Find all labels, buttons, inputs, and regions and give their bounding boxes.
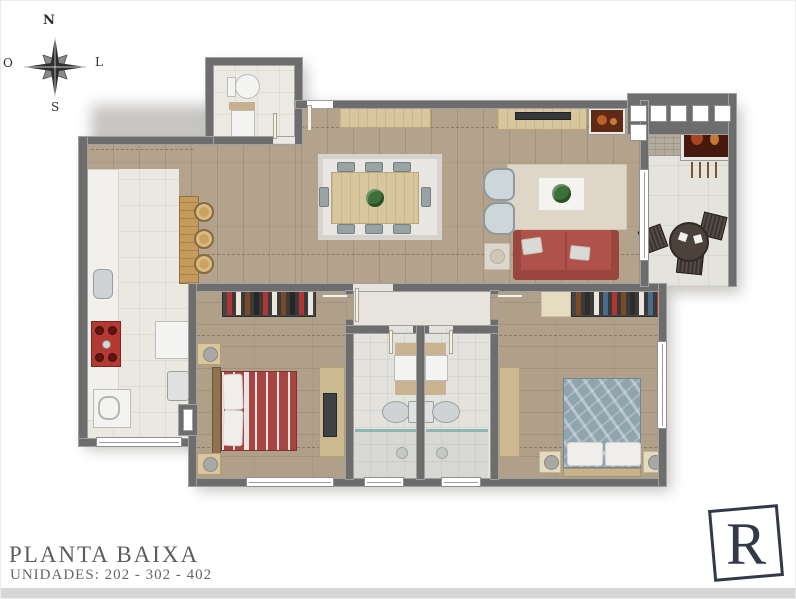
lavabo-walls: [206, 58, 302, 144]
bedroom2-door-leaf: [497, 294, 523, 298]
bath1-door-leaf: [389, 330, 393, 354]
fireplace: [589, 108, 625, 134]
bath1-drain: [396, 447, 408, 459]
kitchen-cooktop: [91, 321, 121, 367]
bath2-shower-zone: [424, 431, 488, 479]
coffee-table-plant: [552, 184, 571, 203]
sideboard: [339, 108, 431, 128]
refrigerator: [155, 321, 189, 359]
plan-subtitle: UNIDADES: 202 - 302 - 402: [10, 567, 212, 584]
footer-bar: [1, 588, 796, 599]
logo-frame-icon: R: [708, 504, 784, 582]
balcony-window: [631, 125, 646, 140]
compass-rose-icon: N O L S: [1, 7, 113, 119]
bedroom2-window: [657, 341, 667, 429]
laundry-tank: [167, 371, 189, 401]
bar-stool: [194, 254, 214, 274]
fire-glow: [597, 115, 607, 125]
bath1-vanity: [394, 355, 417, 381]
balcony-window: [715, 106, 730, 121]
sofa-pillow: [569, 245, 590, 261]
grill-skewer: [691, 162, 693, 178]
logo-mark: R: [705, 501, 789, 587]
bed-pillow: [222, 410, 243, 447]
dining-chair: [393, 224, 411, 234]
fire-glow: [710, 133, 719, 145]
balcony-glass-door: [639, 169, 649, 261]
burner: [108, 353, 117, 362]
logo-letter: R: [714, 510, 778, 579]
bath2-shower-glass: [426, 429, 488, 432]
wall-left: [79, 137, 87, 446]
lavabo-door-leaf: [273, 113, 277, 139]
compass-east-label: L: [95, 55, 103, 69]
bedroom1-door-leaf: [322, 294, 348, 298]
bedroom2-closet: [571, 287, 661, 317]
hanging-clothes: [227, 291, 313, 315]
hanging-clothes: [576, 290, 658, 315]
grill-skewer: [707, 162, 709, 178]
ceiling-line: [499, 335, 657, 336]
balcony-window: [693, 106, 708, 121]
bedroom1-closet: [222, 288, 316, 317]
bath2-toilet-bowl: [432, 401, 460, 423]
dining-chair: [319, 187, 329, 207]
balcony-table: [669, 222, 709, 262]
dining-chair: [365, 224, 383, 234]
napkin: [678, 232, 688, 242]
napkin: [693, 234, 703, 244]
plan-title: PLANTA BAIXA: [9, 542, 199, 568]
balcony-window: [651, 106, 666, 121]
fire-glow: [610, 118, 617, 125]
bedroom1-tv: [323, 393, 337, 437]
hall-door-leaf: [355, 288, 359, 322]
bedroom2-bed-bench: [563, 468, 641, 477]
wall-top-main: [296, 101, 646, 108]
balcony-window: [631, 106, 646, 121]
bedroom1-headboard: [212, 367, 221, 455]
wall-right-upper: [729, 94, 736, 286]
dining-chair: [337, 162, 355, 172]
bed-pillow: [222, 374, 243, 411]
tv-flatscreen: [515, 112, 571, 120]
bedroom1-window: [246, 477, 334, 487]
bar-stool: [194, 229, 214, 249]
ceiling-line: [197, 335, 345, 336]
bedside-lamp: [544, 455, 559, 470]
wall-kitchen-right: [189, 284, 196, 486]
dining-chair: [365, 162, 383, 172]
bedside-lamp: [203, 347, 218, 362]
bath2-door-leaf: [449, 330, 453, 354]
dining-chair: [421, 187, 431, 207]
stone-wall-panel: [646, 134, 680, 156]
bath1-window: [364, 477, 404, 487]
armchair: [483, 168, 515, 201]
dining-chair: [337, 224, 355, 234]
side-table: [484, 243, 510, 270]
burner: [108, 326, 117, 335]
bed-pillow: [567, 442, 603, 466]
bath2-drain: [436, 447, 448, 459]
burner-center: [102, 340, 111, 349]
burner: [95, 326, 104, 335]
armchair: [483, 202, 515, 235]
washing-machine: [93, 389, 131, 428]
sofa-pillow: [521, 237, 543, 256]
washer-drum: [98, 396, 120, 420]
bar-stool: [194, 202, 214, 222]
dining-chair: [393, 162, 411, 172]
utility-shaft: [179, 405, 197, 435]
floorplan-page: N O L S: [0, 0, 796, 599]
wall-mid-horizontal: [189, 284, 666, 291]
table-plant: [366, 189, 384, 207]
bed-sheet-fold: [244, 372, 249, 450]
bedroom2-cabinet: [541, 287, 571, 317]
grill-skewer: [699, 162, 701, 178]
bath1-toilet-bowl: [382, 401, 410, 423]
decor-bowl: [490, 249, 505, 264]
compass-west-label: O: [3, 56, 13, 70]
wall-bath-shared: [417, 326, 424, 479]
hall-door-gap: [353, 284, 393, 291]
kitchen-sink: [93, 269, 113, 299]
sofa: [513, 230, 619, 280]
bed-pillow: [605, 442, 641, 466]
bath2-vanity: [425, 355, 448, 381]
bath2-window: [441, 477, 481, 487]
bath1-shower-glass: [355, 429, 417, 432]
bedroom2-desk: [499, 367, 520, 457]
kitchen-window: [96, 437, 182, 447]
wall-top-left: [79, 137, 213, 144]
entry-door-leaf: [307, 105, 312, 131]
compass-south-label: S: [51, 100, 59, 114]
grill-skewer: [715, 162, 717, 178]
compass-star-icon: [15, 27, 95, 107]
burner: [95, 353, 104, 362]
ceiling-line: [91, 149, 193, 150]
sofa-seam: [565, 232, 567, 272]
compass-north-label: N: [43, 13, 55, 28]
balcony-window: [671, 106, 686, 121]
bedside-lamp: [203, 457, 218, 472]
